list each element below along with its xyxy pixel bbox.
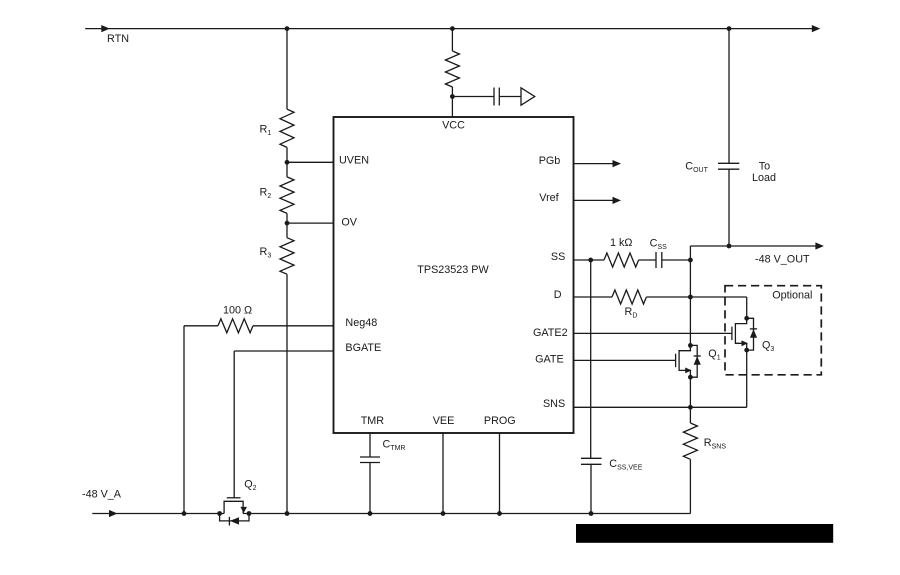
svg-text:OV: OV xyxy=(341,217,357,229)
svg-text:CSS,VEE: CSS,VEE xyxy=(609,458,642,472)
svg-text:Q3: Q3 xyxy=(762,340,774,354)
svg-text:-48 V_OUT: -48 V_OUT xyxy=(755,253,810,265)
svg-text:D: D xyxy=(554,289,562,301)
svg-text:COUT: COUT xyxy=(685,161,708,175)
svg-text:BGATE: BGATE xyxy=(345,342,381,354)
svg-text:To: To xyxy=(759,161,770,173)
svg-text:RSNS: RSNS xyxy=(704,437,727,451)
svg-text:VCC: VCC xyxy=(442,119,465,131)
svg-text:GATE2: GATE2 xyxy=(533,327,568,339)
svg-text:VEE: VEE xyxy=(433,415,455,427)
svg-text:SS: SS xyxy=(551,251,565,263)
svg-text:GATE: GATE xyxy=(535,354,564,366)
svg-text:Q2: Q2 xyxy=(244,478,256,492)
svg-text:Q1: Q1 xyxy=(708,348,720,362)
svg-text:PGb: PGb xyxy=(539,155,561,167)
svg-text:CTMR: CTMR xyxy=(383,438,406,452)
svg-text:R2: R2 xyxy=(260,187,272,201)
svg-text:PROG: PROG xyxy=(484,415,516,427)
svg-text:SNS: SNS xyxy=(543,398,565,410)
svg-text:Optional: Optional xyxy=(772,290,812,302)
svg-text:RD: RD xyxy=(625,306,638,320)
svg-text:Neg48: Neg48 xyxy=(345,317,377,329)
svg-text:TMR: TMR xyxy=(361,415,385,427)
svg-text:CSS: CSS xyxy=(650,237,667,251)
svg-text:Load: Load xyxy=(752,172,776,184)
svg-text:-48 V_A: -48 V_A xyxy=(82,489,122,501)
svg-text:R3: R3 xyxy=(260,246,272,260)
svg-text:R1: R1 xyxy=(260,124,272,138)
svg-text:100 Ω: 100 Ω xyxy=(223,305,252,317)
svg-text:RTN: RTN xyxy=(107,33,129,45)
svg-text:Vref: Vref xyxy=(539,192,559,204)
svg-text:1 kΩ: 1 kΩ xyxy=(610,237,632,249)
svg-text:TPS23523 PW: TPS23523 PW xyxy=(417,264,489,276)
svg-text:UVEN: UVEN xyxy=(339,154,369,166)
